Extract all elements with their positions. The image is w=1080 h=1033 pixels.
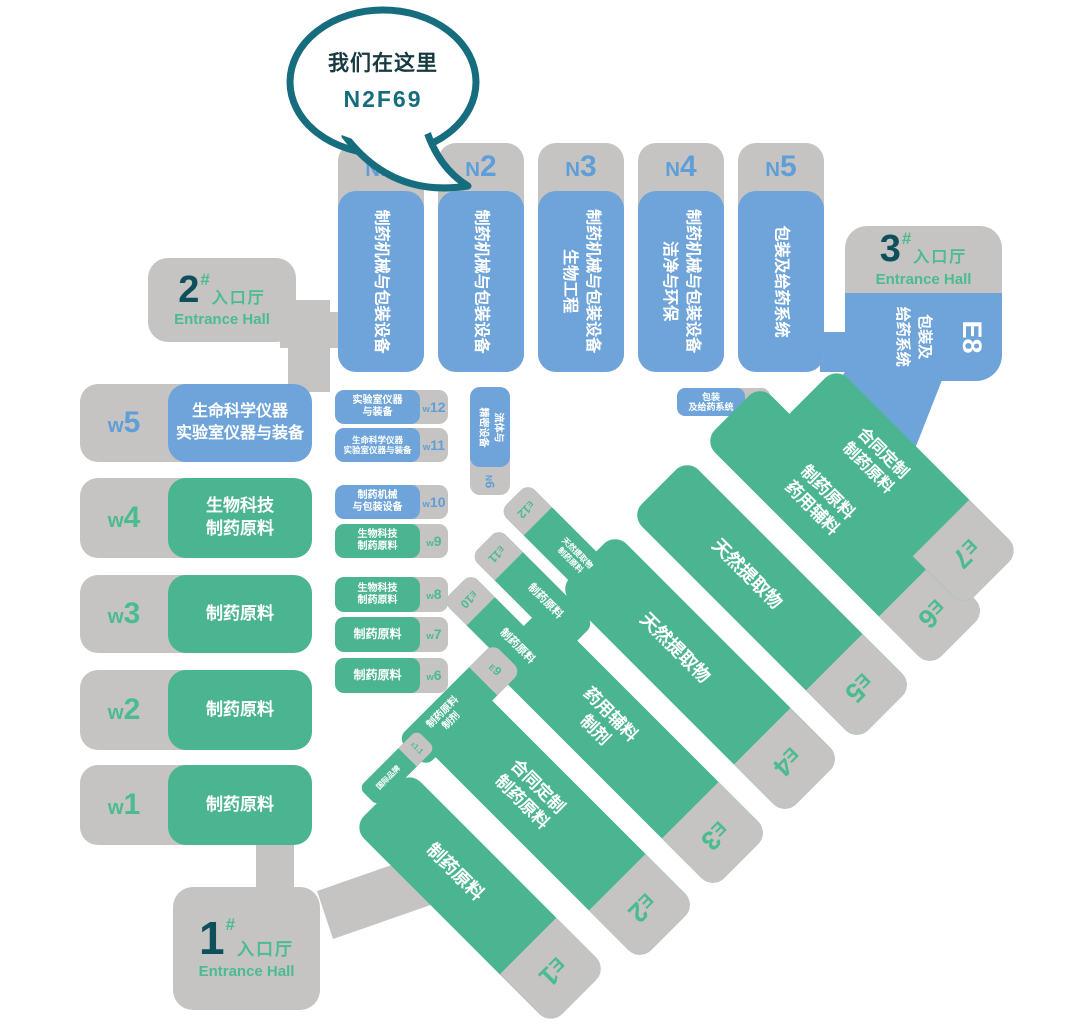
- hall-e1-category: 制药原料: [421, 839, 488, 906]
- bubble-text-cn: 我们在这里: [303, 47, 463, 77]
- hall-w11-label: w11: [423, 438, 445, 453]
- hall-n6-category: 流体与: [490, 412, 505, 442]
- hall-e12-label: E12: [515, 498, 537, 520]
- hall-n1: N1 制药机械与包装设备: [338, 143, 424, 372]
- hall-w2-body: 制药原料: [168, 670, 312, 750]
- entrance-3-cn: 入口厅: [913, 243, 967, 267]
- hall-w1-label: w1: [108, 790, 141, 820]
- hall-n4-category: 制药机械与包装设备: [681, 209, 704, 353]
- hall-n6: 流体与精密设备 N6: [470, 387, 510, 495]
- hall-e8-label: E8: [956, 320, 987, 353]
- hall-w3-body: 制药原料: [168, 575, 312, 653]
- entrance-1-en: Entrance Hall: [199, 963, 295, 980]
- hall-n2-cap: N2: [438, 143, 524, 191]
- hall-n5-category: 包装及给药系统: [769, 225, 792, 337]
- entrance-3-hash: #: [902, 229, 911, 249]
- hall-n4-label: N4: [665, 152, 696, 182]
- hall-w4-label: w4: [108, 503, 141, 533]
- hall-n1-category: 制药机械与包装设备: [369, 209, 392, 353]
- hall-n2-category: 制药机械与包装设备: [469, 209, 492, 353]
- hall-w11-category-2: 实验室仪器与装备: [343, 445, 411, 455]
- hall-w10: 制药机械 与包装设备 w10: [335, 485, 448, 519]
- hall-w1-body: 制药原料: [168, 765, 312, 845]
- hall-e5-label: E5: [840, 668, 878, 706]
- hall-n3-category-2: 生物工程: [558, 249, 581, 313]
- hall-n2-label: N2: [465, 152, 496, 182]
- hall-n6-cap: N6: [470, 467, 510, 495]
- hall-n3-category: 制药机械与包装设备: [581, 209, 604, 353]
- hall-n3-label: N3: [565, 152, 596, 182]
- hall-n7-category: 包装: [702, 392, 720, 402]
- hall-n5-label: N5: [765, 152, 796, 182]
- entrance-1-cn: 入口厅: [237, 935, 294, 960]
- hall-w6-label: w6: [426, 668, 441, 683]
- hall-w4-category: 生物科技: [206, 495, 274, 518]
- hall-w3-category: 制药原料: [206, 603, 274, 626]
- hall-w6-body: 制药原料: [335, 658, 420, 693]
- hall-w4-body: 生物科技 制药原料: [168, 478, 312, 558]
- hall-w7-cap: w7: [420, 617, 448, 652]
- hall-e8-category: 包装及: [913, 314, 935, 359]
- hall-w2: w2 制药原料: [80, 670, 312, 750]
- hall-w5-label: w5: [108, 408, 141, 438]
- hall-w3-cap: w3: [80, 575, 168, 653]
- hall-w5-body: 生命科学仪器 实验室仪器与装备: [168, 384, 312, 462]
- hall-e4-label: E4: [768, 742, 806, 780]
- hall-e10-label: E10: [458, 588, 480, 610]
- entrance-1-number: 1: [199, 917, 225, 961]
- exhibition-floor-map: 我们在这里 N2F69 N1 制药机械与包装设备 N2 制药机械与包装设备 N3…: [0, 0, 1080, 1033]
- hall-e7-label: E7: [947, 534, 985, 572]
- hall-n1-body: 制药机械与包装设备: [338, 191, 424, 372]
- hall-w9-label: w9: [426, 534, 441, 549]
- hall-n2-body: 制药机械与包装设备: [438, 191, 524, 372]
- hall-w3: w3 制药原料: [80, 575, 312, 653]
- entrance-1-hash: #: [226, 915, 235, 935]
- hall-n6-label: N6: [484, 474, 497, 488]
- entrance-hall-3: 3 # 入口厅 Entrance Hall: [845, 226, 1002, 293]
- entrance-3-en: Entrance Hall: [876, 271, 972, 288]
- hall-w8-cap: w8: [420, 577, 448, 612]
- hall-e8-body: 包装及给药系统: [883, 293, 943, 381]
- hall-n3-cap: N3: [538, 143, 624, 191]
- hall-n1-cap: N1: [338, 143, 424, 191]
- hall-w8-body: 生物科技 制药原料: [335, 577, 420, 612]
- hall-w11-cap: w11: [420, 428, 448, 462]
- hall-w6-category: 制药原料: [353, 668, 401, 682]
- hall-w10-category-2: 与包装设备: [353, 502, 403, 514]
- hall-w1-cap: w1: [80, 765, 168, 845]
- entrance-2-en: Entrance Hall: [174, 311, 270, 328]
- entrance-3-number: 3: [880, 231, 901, 267]
- hall-w8-category: 生物科技: [358, 583, 398, 595]
- hall-w2-label: w2: [108, 695, 141, 725]
- hall-n3: N3 制药机械与包装设备生物工程: [538, 143, 624, 372]
- hall-w8-category-2: 制药原料: [358, 595, 398, 607]
- hall-w7-category: 制药原料: [353, 627, 401, 641]
- hall-w6-cap: w6: [420, 658, 448, 693]
- entrance-2-hash: #: [200, 270, 209, 290]
- hall-w4: w4 生物科技 制药原料: [80, 478, 312, 558]
- hall-e8: 包装及给药系统 E8: [845, 293, 1002, 381]
- entrance-2-cn: 入口厅: [212, 284, 266, 308]
- hall-w12-label: w12: [423, 400, 446, 415]
- hall-w11-body: 生命科学仪器 实验室仪器与装备: [335, 428, 420, 462]
- hall-w8-label: w8: [426, 587, 441, 602]
- hall-w10-category: 制药机械: [358, 490, 398, 502]
- hall-w6: 制药原料 w6: [335, 658, 448, 693]
- hall-w1-category: 制药原料: [206, 794, 274, 817]
- hall-e11-label: E11: [486, 544, 507, 565]
- we-are-here-label: 我们在这里 N2F69: [303, 47, 463, 113]
- hall-w9-cap: w9: [420, 524, 448, 558]
- hall-n5: N5 包装及给药系统: [738, 143, 824, 372]
- hall-e3-label: E3: [696, 816, 734, 854]
- hall-n7-category-2: 及给药系统: [688, 402, 733, 412]
- hall-n4: N4 制药机械与包装设备洁净与环保: [638, 143, 724, 372]
- hall-n4-cap: N4: [638, 143, 724, 191]
- hall-w5-cap: w5: [80, 384, 168, 462]
- entrance-hall-1: 1 # 入口厅 Entrance Hall: [173, 887, 320, 1010]
- hall-e1-1-label: E1.1: [409, 740, 425, 756]
- hall-w5-category-2: 实验室仪器与装备: [176, 423, 304, 445]
- hall-w9: 生物科技 制药原料 w9: [335, 524, 448, 558]
- hall-e6-label: E6: [913, 594, 951, 632]
- hall-n3-body: 制药机械与包装设备生物工程: [538, 191, 624, 372]
- hall-e5-category: 天然提取物: [706, 534, 786, 614]
- hall-w10-cap: w10: [420, 485, 448, 519]
- hall-e4-category: 天然提取物: [634, 608, 714, 688]
- hall-w1: w1 制药原料: [80, 765, 312, 845]
- hall-w9-body: 生物科技 制药原料: [335, 524, 420, 558]
- hall-w9-category: 生物科技: [358, 529, 398, 541]
- hall-w2-category: 制药原料: [206, 699, 274, 722]
- hall-n6-category-2: 精密设备: [476, 407, 491, 447]
- hall-n6-body: 流体与精密设备: [470, 387, 510, 467]
- hall-w12-category: 实验室仪器: [353, 395, 403, 407]
- hall-w12-cap: w12: [420, 390, 448, 424]
- hall-w10-label: w10: [423, 495, 446, 510]
- hall-n5-body: 包装及给药系统: [738, 191, 824, 372]
- hall-e9-label: E9: [487, 661, 504, 678]
- booth-number: N2F69: [303, 86, 463, 113]
- hall-e1-label: E1: [534, 952, 572, 990]
- hall-w7-label: w7: [426, 627, 441, 642]
- hall-w3-label: w3: [108, 599, 141, 629]
- hall-w10-body: 制药机械 与包装设备: [335, 485, 420, 519]
- hall-w9-category-2: 制药原料: [358, 541, 398, 553]
- hall-w2-cap: w2: [80, 670, 168, 750]
- entrance-2-number: 2: [178, 272, 199, 308]
- hall-w5: w5 生命科学仪器 实验室仪器与装备: [80, 384, 312, 462]
- hall-e2-label: E2: [623, 888, 661, 926]
- hall-w12-body: 实验室仪器 与装备: [335, 390, 420, 424]
- hall-e11-category: 制药原料: [524, 582, 564, 622]
- hall-n2: N2 制药机械与包装设备: [438, 143, 524, 372]
- hall-w4-cap: w4: [80, 478, 168, 558]
- hall-n4-category-2: 洁净与环保: [658, 241, 681, 321]
- hall-w4-category-2: 制药原料: [206, 518, 274, 541]
- hall-w12-category-2: 与装备: [363, 407, 393, 419]
- hall-n5-cap: N5: [738, 143, 824, 191]
- hall-w11: 生命科学仪器 实验室仪器与装备 w11: [335, 428, 448, 462]
- hall-w7: 制药原料 w7: [335, 617, 448, 652]
- hall-n4-body: 制药机械与包装设备洁净与环保: [638, 191, 724, 372]
- hall-e8-category-2: 给药系统: [891, 307, 913, 367]
- entrance-hall-2: 2 # 入口厅 Entrance Hall: [148, 258, 296, 342]
- hall-w7-body: 制药原料: [335, 617, 420, 652]
- hall-w8: 生物科技 制药原料 w8: [335, 577, 448, 612]
- hall-n1-label: N1: [365, 152, 396, 182]
- hall-w11-category: 生命科学仪器: [352, 435, 403, 445]
- hall-w5-category: 生命科学仪器: [192, 401, 288, 423]
- hall-w12: 实验室仪器 与装备 w12: [335, 390, 448, 424]
